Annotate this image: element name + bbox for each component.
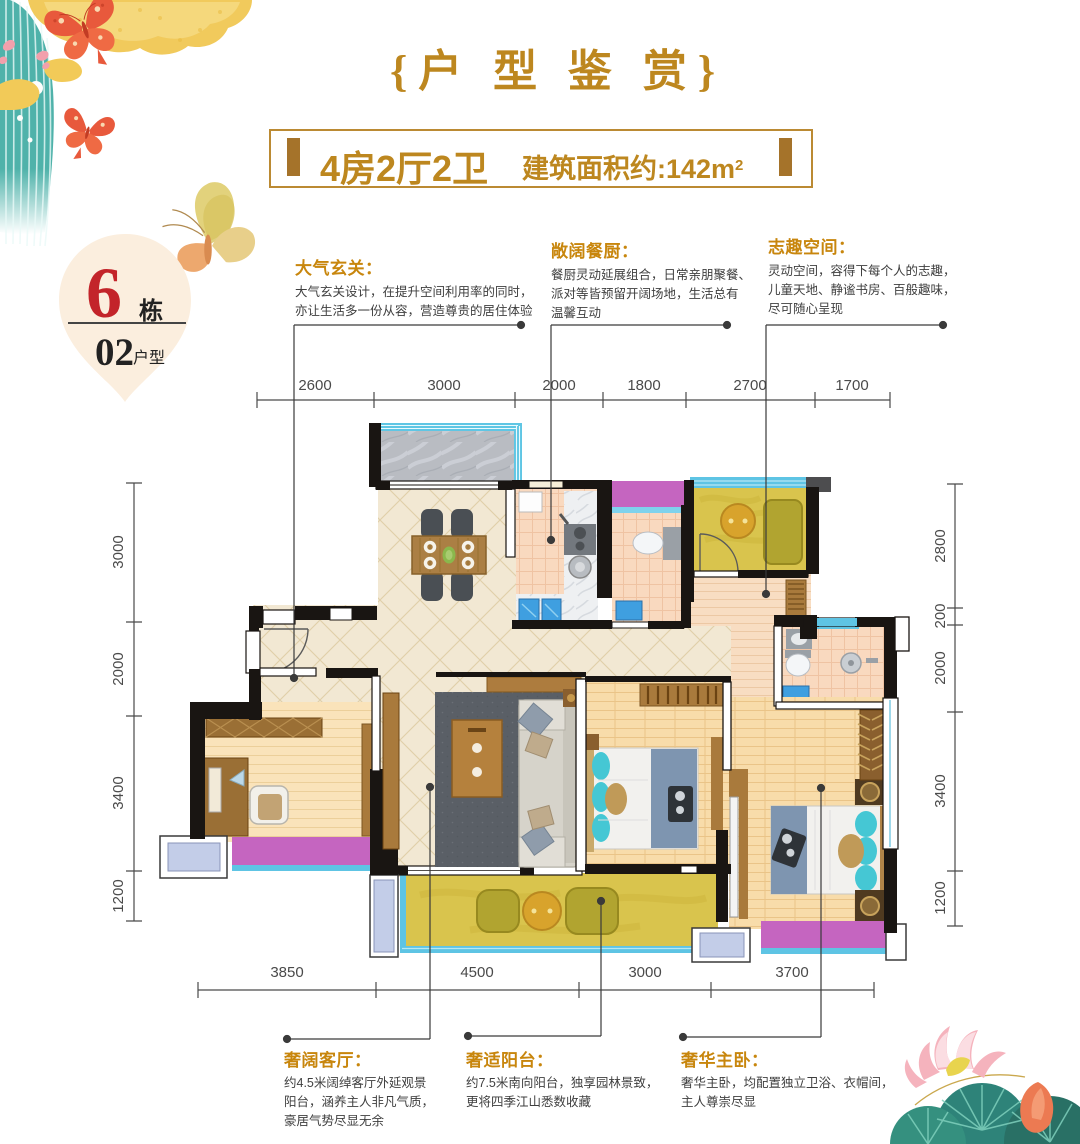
svg-text:3700: 3700 [775,964,808,981]
svg-text:2000: 2000 [542,377,575,394]
svg-text:200: 200 [932,603,949,628]
svg-text:2600: 2600 [298,377,331,394]
svg-text:3000: 3000 [427,377,460,394]
svg-text:2700: 2700 [733,377,766,394]
svg-text:1200: 1200 [110,879,127,912]
svg-text:3400: 3400 [932,774,949,807]
svg-text:2800: 2800 [932,529,949,562]
svg-text:2000: 2000 [932,651,949,684]
svg-text:1200: 1200 [932,881,949,914]
svg-text:2000: 2000 [110,652,127,685]
svg-text:3850: 3850 [270,964,303,981]
svg-text:1800: 1800 [627,377,660,394]
svg-text:3000: 3000 [110,535,127,568]
svg-text:3000: 3000 [628,964,661,981]
svg-text:3400: 3400 [110,776,127,809]
svg-text:1700: 1700 [835,377,868,394]
svg-text:4500: 4500 [460,964,493,981]
